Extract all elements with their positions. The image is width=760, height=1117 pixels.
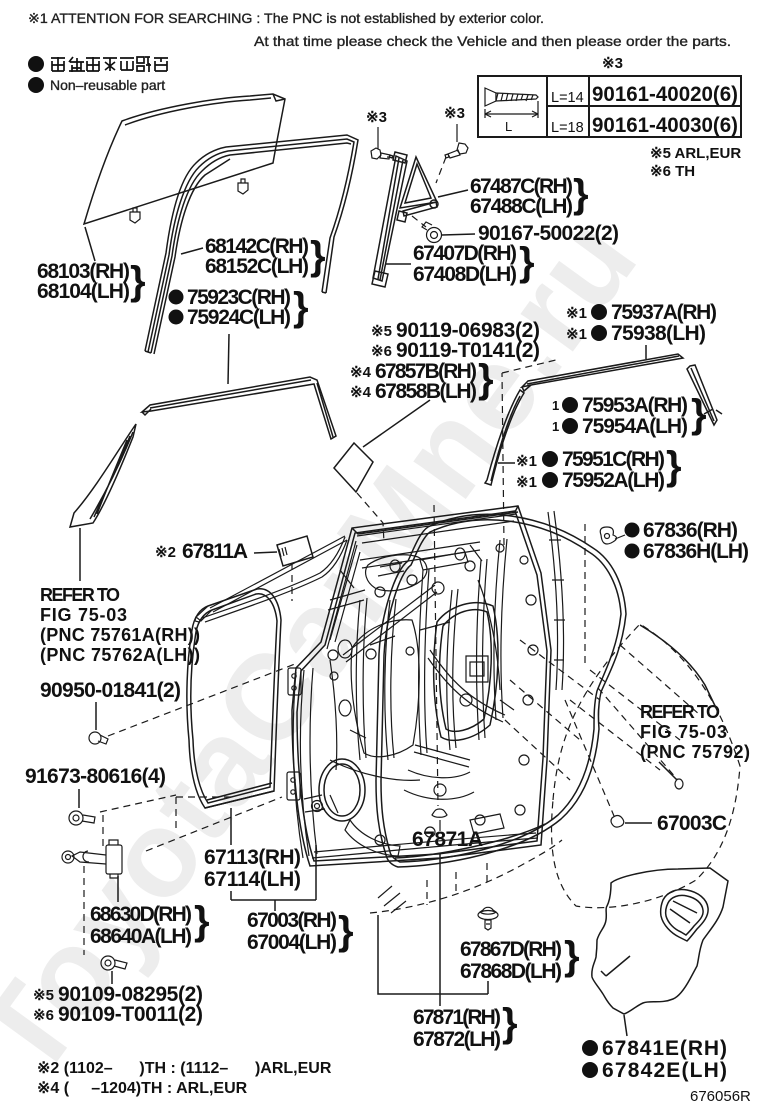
svg-text:68630D(RH): 68630D(RH) — [90, 903, 192, 926]
svg-text:67841E(RH): 67841E(RH) — [602, 1037, 727, 1060]
svg-text:67114(LH): 67114(LH) — [204, 868, 301, 891]
svg-text:}: } — [130, 259, 146, 303]
svg-text:67407D(RH): 67407D(RH) — [413, 242, 517, 265]
svg-text:※6: ※6 — [371, 343, 392, 360]
svg-text:※3: ※3 — [602, 55, 623, 72]
svg-text:L=14: L=14 — [551, 90, 584, 106]
svg-text:}: } — [194, 899, 210, 943]
svg-text:67836H(LH): 67836H(LH) — [643, 540, 749, 563]
svg-text:91673-80616(4): 91673-80616(4) — [25, 765, 166, 788]
svg-text:67811A: 67811A — [182, 540, 248, 563]
svg-text:※3: ※3 — [444, 105, 465, 122]
svg-text:※5: ※5 — [371, 323, 392, 340]
svg-text:REFER TO: REFER TO — [40, 585, 120, 605]
svg-text:※2 (1102– )TH : (1112–: ※2 (1102– )TH : (1112– )ARL,EUR — [37, 1060, 332, 1077]
svg-text:67871(RH): 67871(RH) — [413, 1006, 501, 1029]
svg-text:67872(LH): 67872(LH) — [413, 1028, 501, 1051]
svg-text:67842E(LH): 67842E(LH) — [602, 1059, 727, 1082]
svg-text:FIG 75-03: FIG 75-03 — [40, 605, 127, 625]
svg-text:75953A(RH): 75953A(RH) — [582, 394, 688, 417]
svg-text:}: } — [310, 234, 326, 278]
svg-text:※5: ※5 — [33, 987, 54, 1004]
svg-text:67004(LH): 67004(LH) — [247, 931, 337, 954]
svg-text:※1: ※1 — [566, 326, 587, 343]
svg-text:REFER TO: REFER TO — [640, 702, 720, 722]
svg-text:75951C(RH): 75951C(RH) — [562, 448, 665, 471]
svg-text:67488C(LH): 67488C(LH) — [470, 195, 573, 218]
svg-text:90161-40030(6): 90161-40030(6) — [592, 114, 738, 137]
svg-text:1: 1 — [552, 419, 559, 434]
svg-text:68640A(LH): 68640A(LH) — [90, 925, 192, 948]
svg-text:75937A(RH): 75937A(RH) — [611, 301, 717, 324]
svg-text:(PNC 75792): (PNC 75792) — [640, 742, 750, 762]
svg-text:※6 TH: ※6 TH — [650, 163, 695, 180]
svg-text:※3: ※3 — [366, 109, 387, 126]
svg-text:※4: ※4 — [350, 364, 372, 381]
svg-text:}: } — [293, 285, 309, 329]
svg-text:75924C(LH): 75924C(LH) — [187, 306, 291, 329]
svg-text:67868D(LH): 67868D(LH) — [460, 960, 562, 983]
svg-text:67836(RH): 67836(RH) — [643, 519, 738, 542]
svg-text:※2: ※2 — [155, 544, 176, 561]
svg-text:※6: ※6 — [33, 1007, 54, 1024]
svg-text:※4: ※4 — [350, 384, 372, 401]
svg-text:At that time please check the: At that time please check the Vehicle an… — [254, 33, 731, 49]
svg-text:67003C: 67003C — [657, 812, 727, 835]
svg-text:676056R: 676056R — [690, 1088, 751, 1105]
svg-text:75952A(LH): 75952A(LH) — [562, 469, 665, 492]
svg-text:(PNC 75762A(LH)): (PNC 75762A(LH)) — [40, 645, 200, 665]
svg-text:}: } — [666, 444, 682, 488]
svg-text:1: 1 — [552, 398, 559, 413]
svg-text:Non–reusable part: Non–reusable part — [50, 77, 165, 93]
svg-text:67858B(LH): 67858B(LH) — [375, 380, 477, 403]
svg-text:※1: ※1 — [516, 453, 537, 470]
svg-text:※5 ARL,EUR: ※5 ARL,EUR — [650, 145, 741, 162]
svg-text:68104(LH): 68104(LH) — [37, 280, 130, 303]
svg-text:67003(RH): 67003(RH) — [247, 909, 337, 932]
svg-text:※1: ※1 — [516, 474, 537, 491]
svg-text:}: } — [564, 934, 580, 978]
svg-text:90161-40020(6): 90161-40020(6) — [592, 83, 738, 106]
svg-text:(PNC 75761A(RH)): (PNC 75761A(RH)) — [40, 625, 200, 645]
svg-text:FIG 75-03: FIG 75-03 — [640, 722, 727, 742]
svg-text:67867D(RH): 67867D(RH) — [460, 938, 562, 961]
svg-text:}: } — [338, 909, 354, 953]
svg-text:L=18: L=18 — [551, 120, 584, 136]
svg-text:※1: ※1 — [566, 305, 587, 322]
svg-text:75938(LH): 75938(LH) — [611, 322, 706, 345]
svg-text:90950-01841(2): 90950-01841(2) — [40, 679, 181, 702]
svg-text:}: } — [519, 240, 535, 284]
svg-text:}: } — [502, 1001, 518, 1045]
svg-text:67113(RH): 67113(RH) — [204, 846, 301, 869]
svg-text:75954A(LH): 75954A(LH) — [582, 415, 688, 438]
svg-text:67408D(LH): 67408D(LH) — [413, 263, 517, 286]
svg-text:※4 ( –1204)TH : ARL,EUR: ※4 ( –1204)TH : ARL,EUR — [37, 1080, 248, 1097]
svg-text:68152C(LH): 68152C(LH) — [205, 255, 309, 278]
svg-text:L: L — [505, 119, 512, 134]
svg-text:※1 ATTENTION FOR SEARCHING :: ※1 ATTENTION FOR SEARCHING : The PNC is … — [28, 10, 544, 26]
svg-text:90109-T0011(2): 90109-T0011(2) — [58, 1003, 203, 1026]
svg-text:}: } — [573, 172, 589, 216]
svg-text:}: } — [478, 357, 494, 401]
svg-text:90119-T0141(2): 90119-T0141(2) — [396, 339, 540, 362]
